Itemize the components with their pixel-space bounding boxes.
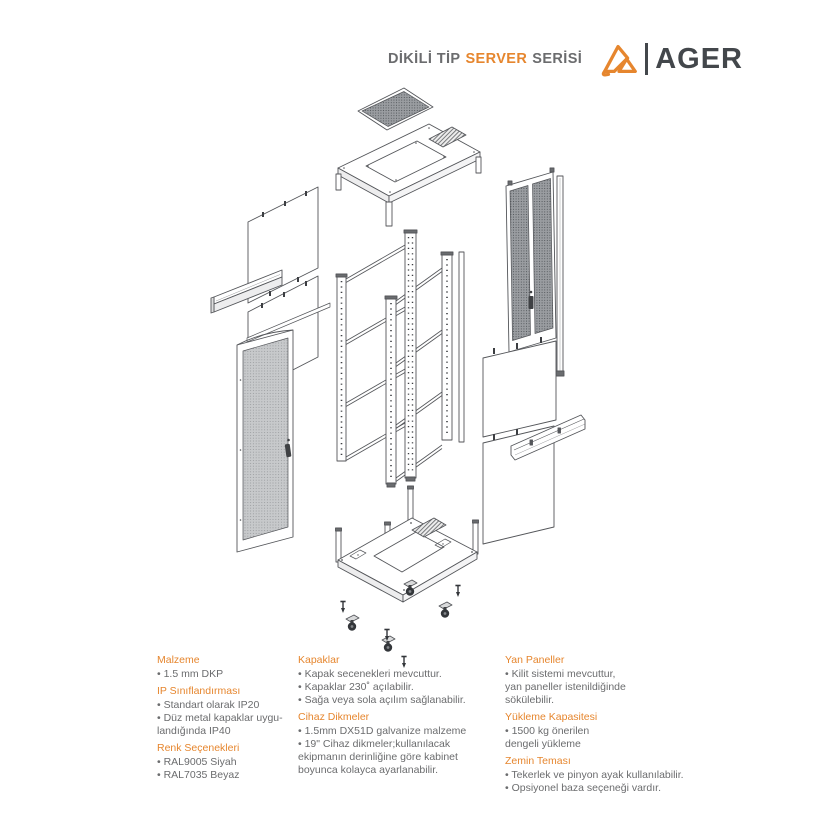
spec-heading: Kapaklar — [298, 654, 478, 667]
spec-line: • Opsiyonel baza seçeneği vardır. — [505, 782, 685, 795]
spec-heading: Cihaz Dikmeler — [298, 711, 478, 724]
spec-line: • 19" Cihaz dikmeler;kullanılacak — [298, 738, 478, 751]
spec-line: • Kapaklar 230˚ açılabilir. — [298, 681, 478, 694]
spec-heading: Yan Paneller — [505, 654, 685, 667]
spec-heading: IP Sınıflandırması — [157, 685, 299, 698]
spec-heading: Renk Seçenekleri — [157, 742, 299, 755]
spec-line: • Düz metal kapaklar uygu- — [157, 712, 299, 725]
spec-line: • Standart olarak IP20 — [157, 699, 299, 712]
spec-line: • Kapak secenekleri mevcuttur. — [298, 668, 478, 681]
spec-section: Renk Seçenekleri• RAL9005 Siyah• RAL7035… — [157, 742, 299, 782]
spec-line: dengeli yükleme — [505, 738, 685, 751]
spec-line: • 1.5mm DX51D galvanize malzeme — [298, 725, 478, 738]
spec-section: Yükleme Kapasitesi• 1500 kg önerilendeng… — [505, 711, 685, 751]
spec-line: • RAL7035 Beyaz — [157, 769, 299, 782]
spec-line: boyunca kolayca ayarlanabilir. — [298, 764, 478, 777]
spec-column: Yan Paneller• Kilit sistemi mevcuttur,ya… — [505, 654, 685, 799]
spec-line: • Sağa veya sola açılım sağlanabilir. — [298, 694, 478, 707]
spec-line: • 1.5 mm DKP — [157, 668, 299, 681]
spec-line: • Tekerlek ve pinyon ayak kullanılabilir… — [505, 769, 685, 782]
spec-section: Zemin Teması• Tekerlek ve pinyon ayak ku… — [505, 755, 685, 795]
spec-line: • 1500 kg önerilen — [505, 725, 685, 738]
spec-heading: Yükleme Kapasitesi — [505, 711, 685, 724]
specs-columns: Malzeme• 1.5 mm DKPIP Sınıflandırması• S… — [0, 0, 828, 828]
spec-column: Malzeme• 1.5 mm DKPIP Sınıflandırması• S… — [157, 654, 299, 786]
spec-section: Kapaklar• Kapak secenekleri mevcuttur.• … — [298, 654, 478, 707]
spec-line: sökülebilir. — [505, 694, 685, 707]
spec-line: landığında IP40 — [157, 725, 299, 738]
spec-heading: Zemin Teması — [505, 755, 685, 768]
page: DİKİLİ TİPSERVERSERİSİ AGER — [0, 0, 828, 828]
spec-column: Kapaklar• Kapak secenekleri mevcuttur.• … — [298, 654, 478, 781]
spec-section: IP Sınıflandırması• Standart olarak IP20… — [157, 685, 299, 738]
spec-heading: Malzeme — [157, 654, 299, 667]
spec-line: yan paneller istenildiğinde — [505, 681, 685, 694]
spec-line: • RAL9005 Siyah — [157, 756, 299, 769]
spec-section: Malzeme• 1.5 mm DKP — [157, 654, 299, 681]
spec-section: Yan Paneller• Kilit sistemi mevcuttur,ya… — [505, 654, 685, 707]
spec-line: ekipmanın derinliğine göre kabinet — [298, 751, 478, 764]
spec-line: • Kilit sistemi mevcuttur, — [505, 668, 685, 681]
spec-section: Cihaz Dikmeler• 1.5mm DX51D galvanize ma… — [298, 711, 478, 777]
